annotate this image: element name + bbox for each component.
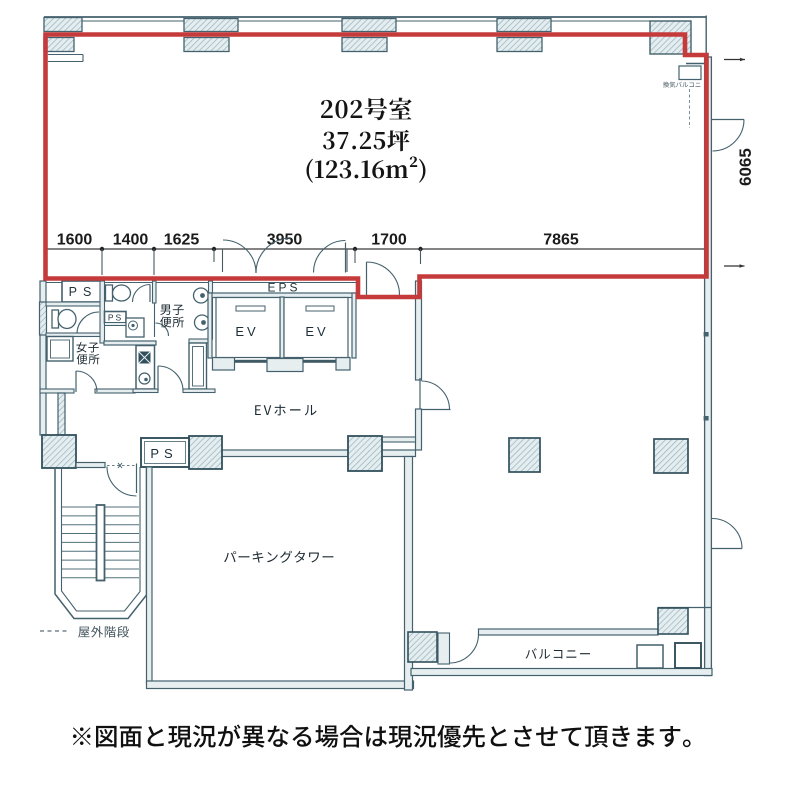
svg-text:1700: 1700 [371, 232, 407, 249]
svg-text:EPS: EPS [267, 281, 300, 295]
svg-text:EV: EV [305, 324, 328, 339]
svg-text:3950: 3950 [267, 232, 303, 249]
svg-text:PS: PS [150, 446, 177, 461]
svg-text:PS: PS [69, 285, 98, 299]
svg-text:PS: PS [108, 313, 123, 323]
svg-text:1625: 1625 [164, 232, 200, 249]
svg-text:1400: 1400 [113, 232, 149, 249]
svg-text:6065: 6065 [736, 148, 755, 186]
svg-text:7865: 7865 [543, 232, 579, 249]
svg-text:EV: EV [235, 324, 258, 339]
svg-text:1600: 1600 [57, 232, 93, 249]
